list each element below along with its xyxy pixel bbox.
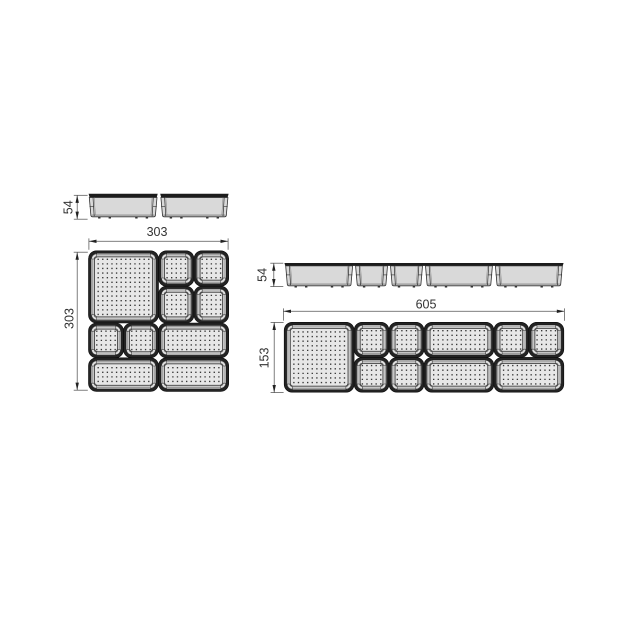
svg-text:303: 303 bbox=[62, 308, 76, 329]
svg-text:54: 54 bbox=[62, 200, 76, 214]
svg-text:303: 303 bbox=[147, 225, 168, 239]
svg-text:54: 54 bbox=[255, 268, 269, 282]
svg-text:153: 153 bbox=[258, 348, 272, 369]
svg-text:605: 605 bbox=[416, 297, 437, 311]
